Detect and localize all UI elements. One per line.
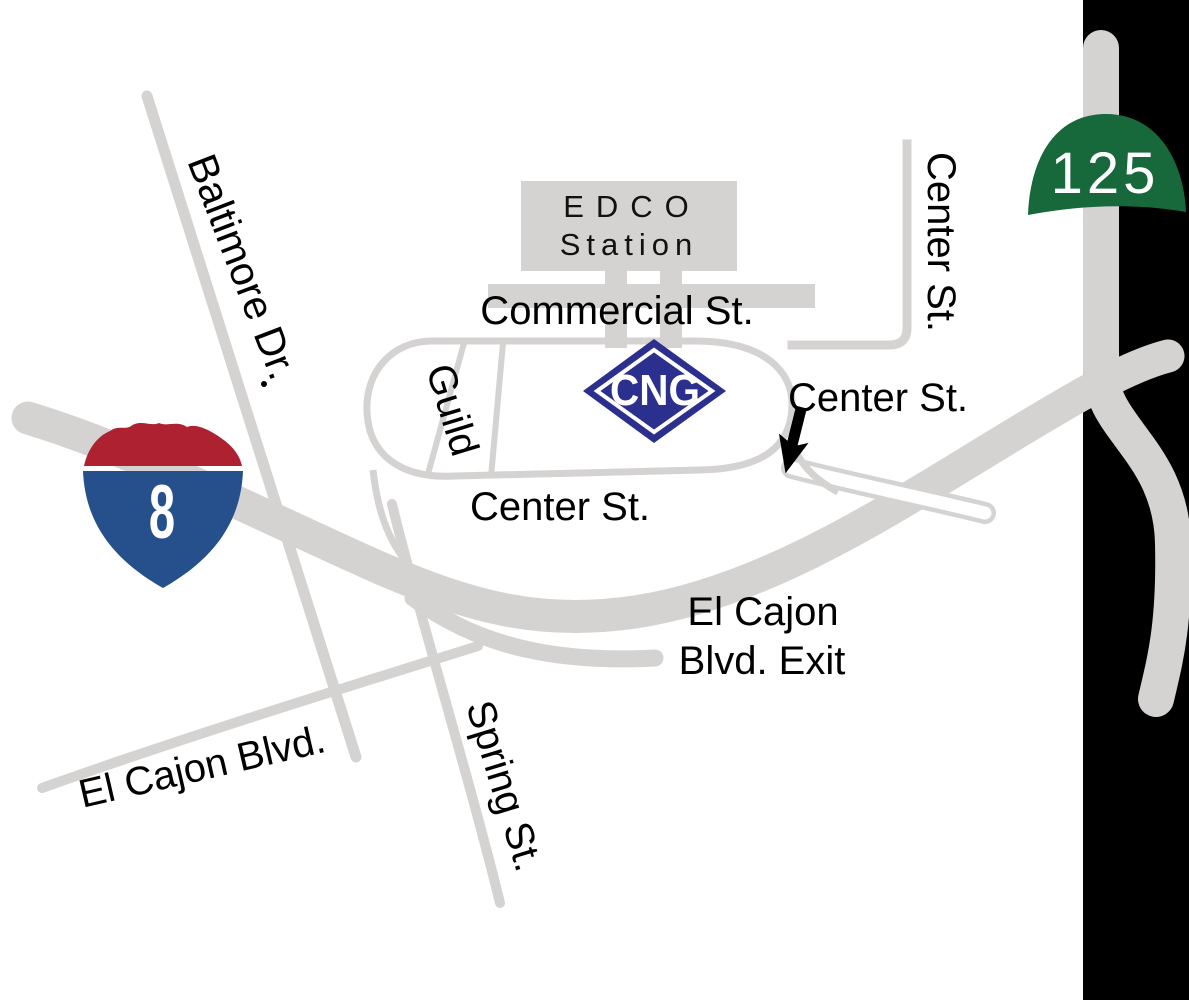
label-center-st-north: Center St.: [921, 152, 961, 332]
edco-box-line2: Station: [560, 227, 699, 263]
label-exit-line1: El Cajon: [687, 592, 838, 632]
label-center-st-east: Center St.: [788, 378, 968, 418]
edco-box-line1: EDCO: [563, 189, 701, 225]
interstate-8-number: 8: [149, 469, 175, 556]
label-exit-line2: Blvd. Exit: [679, 641, 846, 681]
label-center-st-inner: Center St.: [470, 487, 650, 527]
label-commercial-st: Commercial St.: [480, 291, 753, 331]
route-125-number: 125: [1051, 140, 1160, 207]
edco-station-map: EDCO Station Commercial St. Center St. C…: [0, 0, 1189, 1000]
center-st-north-road: [792, 144, 907, 345]
cng-marker-text: CNG: [610, 366, 700, 416]
